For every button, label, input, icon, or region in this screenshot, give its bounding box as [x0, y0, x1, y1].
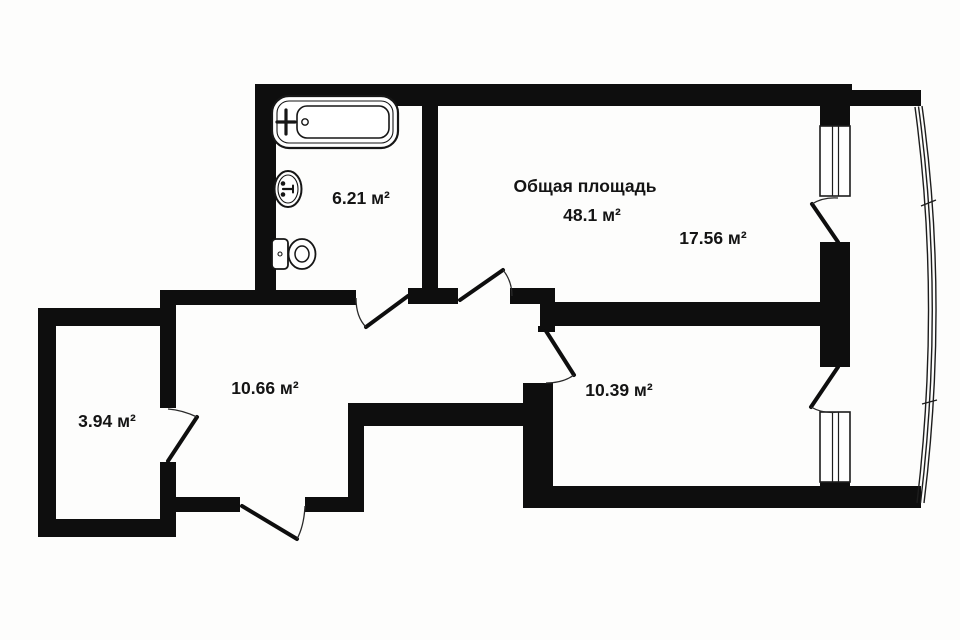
label-hallway-area: 10.66 м² — [231, 378, 299, 398]
door-entrance — [242, 506, 305, 539]
wall-jamb-hall-1 — [408, 288, 458, 304]
wall-storage-bottom — [38, 519, 176, 537]
door-balcony-living — [812, 198, 838, 242]
walls — [38, 84, 921, 537]
wall-storage-left — [38, 308, 56, 537]
floor-plan-drawing: Общая площадь 48.1 м² 17.56 м² 6.21 м² 1… — [0, 0, 960, 640]
bathroom-fixtures — [272, 96, 398, 269]
sink-icon — [275, 171, 302, 207]
wall-top-right-ext — [845, 90, 921, 106]
wall-storage-right-upper — [160, 290, 176, 408]
wall-right-seg-2 — [820, 242, 850, 367]
label-total-area-title: Общая площадь — [514, 176, 657, 196]
label-living-room-area: 17.56 м² — [679, 228, 747, 248]
door-balcony-bedroom — [811, 367, 838, 412]
apartment-floor-plan: Общая площадь 48.1 м² 17.56 м² 6.21 м² 1… — [0, 0, 960, 640]
door-living-room — [460, 270, 512, 300]
balcony-glazing — [915, 106, 937, 503]
wall-bathroom-bottom — [160, 290, 356, 305]
window-living-room — [820, 126, 850, 196]
wall-notch-top — [348, 403, 530, 426]
wall-hall-bottom-right — [305, 497, 364, 512]
wall-storage-top — [38, 308, 176, 326]
label-bedroom-area: 10.39 м² — [585, 380, 653, 400]
wall-bathroom-right — [422, 102, 438, 292]
bathtub-icon — [272, 96, 398, 148]
toilet-icon — [272, 239, 316, 269]
wall-right-seg-3 — [820, 482, 850, 508]
window-bedroom — [820, 412, 850, 482]
wall-jamb-hall-2 — [510, 288, 555, 304]
wall-living-bedroom — [540, 302, 845, 326]
label-total-area-value: 48.1 м² — [563, 205, 621, 225]
label-storage-area: 3.94 м² — [78, 411, 136, 431]
wall-bottom — [523, 486, 921, 508]
door-bedroom — [546, 331, 574, 383]
door-storage — [168, 409, 197, 461]
label-bathroom-area: 6.21 м² — [332, 188, 390, 208]
door-bathroom — [356, 296, 408, 327]
wall-right-seg-1 — [820, 102, 850, 126]
